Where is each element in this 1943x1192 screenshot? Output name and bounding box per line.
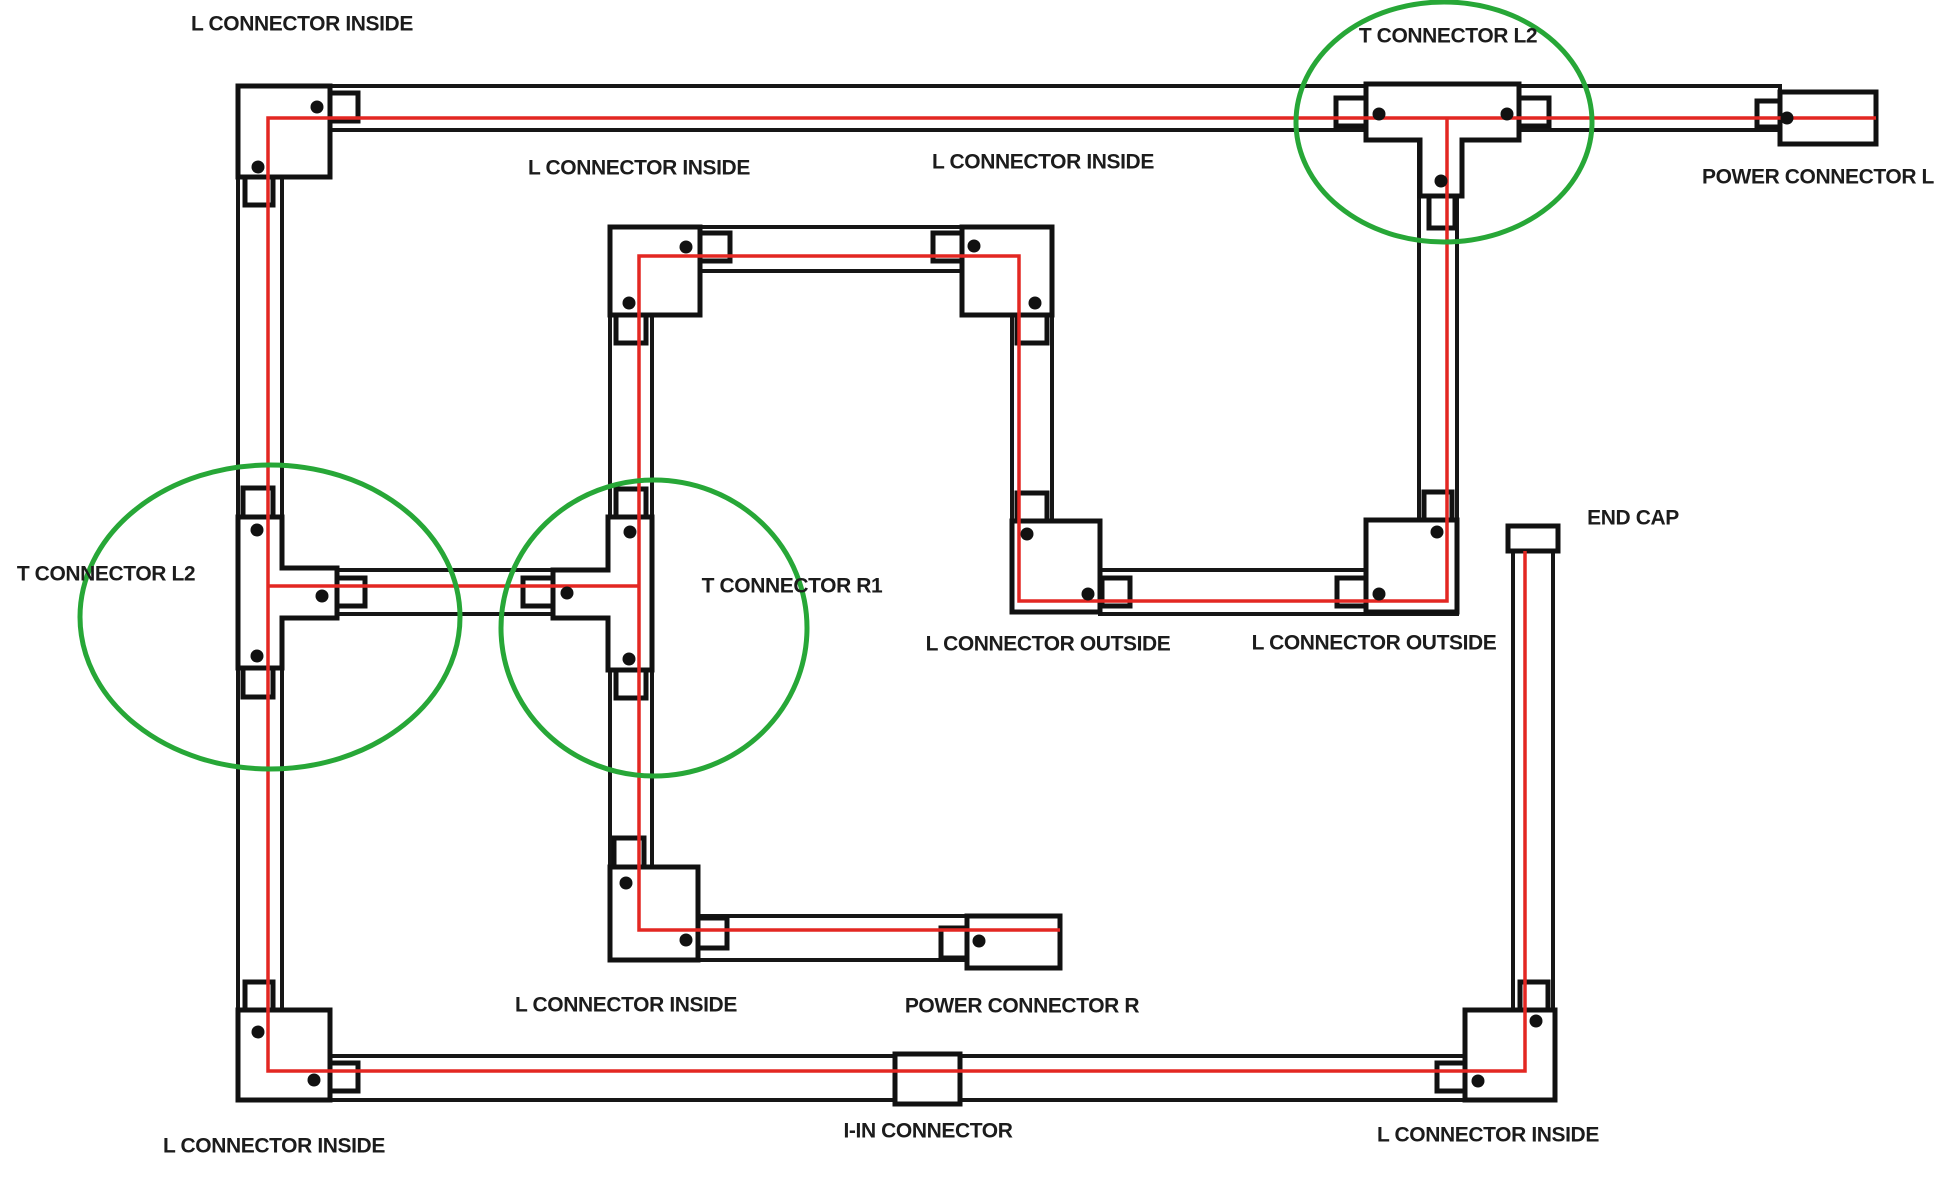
dot-tee-top-b: [1501, 108, 1514, 121]
dot-corner-bottom-left-b: [308, 1074, 321, 1087]
tab-c7-left: [1437, 1063, 1465, 1091]
label-end-cap: END CAP: [1587, 507, 1679, 530]
label-l-connector-inside-inner-top-right: L CONNECTOR INSIDE: [932, 151, 1154, 174]
dot-corner-bottom-left-a: [252, 1026, 265, 1039]
dot-corner-bottom-right-a: [1530, 1015, 1543, 1028]
label-l-connector-inside-inner-top-left: L CONNECTOR INSIDE: [528, 157, 750, 180]
label-l-connector-inside-bottom-left: L CONNECTOR INSIDE: [163, 1135, 385, 1158]
label-l-connector-outside-left: L CONNECTOR OUTSIDE: [926, 633, 1171, 656]
dot-corner-outside-left-b: [1082, 588, 1095, 601]
track-layout-diagram: L CONNECTOR INSIDET CONNECTOR L2L CONNEC…: [0, 0, 1943, 1192]
tab-tee-top-left: [1336, 98, 1366, 126]
corner-l-inside-bottom-left: [238, 1010, 330, 1100]
diagram-canvas: L CONNECTOR INSIDET CONNECTOR L2L CONNEC…: [0, 0, 1943, 1192]
dot-corner-inner-tl-b: [623, 297, 636, 310]
dot-tee-top-a: [1373, 108, 1386, 121]
dot-tee-top-stem: [1435, 175, 1448, 188]
label-power-connector-r: POWER CONNECTOR R: [905, 995, 1140, 1018]
tab-power-l: [1757, 101, 1780, 127]
tab-tee-top-right: [1519, 98, 1549, 126]
dot-corner-top-left-a: [311, 101, 324, 114]
tab-t3-bottom: [616, 670, 646, 698]
dot-power-l: [1781, 112, 1794, 125]
dot-corner-outside-right-b: [1373, 588, 1386, 601]
dot-corner-outside-right-a: [1431, 526, 1444, 539]
label-l-connector-inside-top-left: L CONNECTOR INSIDE: [191, 13, 413, 36]
tab-tee-top-stem: [1429, 196, 1455, 228]
dot-tee-left-a: [251, 524, 264, 537]
tab-c8-right: [330, 1063, 358, 1091]
label-i-in-connector: I-IN CONNECTOR: [843, 1120, 1012, 1143]
dot-tee-left-branch: [316, 590, 329, 603]
label-l-connector-outside-right: L CONNECTOR OUTSIDE: [1252, 632, 1497, 655]
dot-tee-mid-b: [623, 653, 636, 666]
track-top: [330, 86, 1780, 130]
i-in-connector-box: [895, 1054, 960, 1104]
dot-power-r: [973, 935, 986, 948]
dot-corner-inner-tr-b: [1029, 297, 1042, 310]
label-power-connector-l: POWER CONNECTOR L: [1702, 166, 1935, 189]
label-l-connector-inside-inner-bottom: L CONNECTOR INSIDE: [515, 994, 737, 1017]
tab-c4-top: [1017, 493, 1047, 521]
dot-tee-left-b: [251, 650, 264, 663]
dot-corner-inner-bl-a: [620, 877, 633, 890]
tab-c3-bottom: [1017, 315, 1047, 343]
tab-t3-branch: [523, 578, 553, 606]
end-cap-piece: [1508, 526, 1558, 551]
dot-corner-bottom-right-b: [1472, 1075, 1485, 1088]
label-l-connector-inside-bottom-right: L CONNECTOR INSIDE: [1377, 1124, 1599, 1147]
tab-t2-branch: [337, 578, 365, 606]
tab-c2-bottom: [616, 315, 646, 343]
dot-corner-inner-bl-b: [680, 934, 693, 947]
tab-c6-right: [698, 918, 727, 948]
dot-corner-outside-left-a: [1021, 528, 1034, 541]
tab-t3-top: [616, 489, 646, 517]
corner-l-inside-top-left: [238, 86, 330, 177]
tab-power-r: [941, 928, 967, 958]
dot-corner-top-left-b: [252, 161, 265, 174]
label-t-connector-l2-top: T CONNECTOR L2: [1359, 25, 1537, 48]
dot-corner-inner-tr-a: [968, 240, 981, 253]
label-t-connector-r1: T CONNECTOR R1: [702, 575, 883, 598]
dot-tee-mid-a: [624, 526, 637, 539]
label-t-connector-l2-left: T CONNECTOR L2: [17, 563, 195, 586]
dot-tee-mid-branch: [561, 587, 574, 600]
dot-corner-inner-tl-a: [680, 241, 693, 254]
